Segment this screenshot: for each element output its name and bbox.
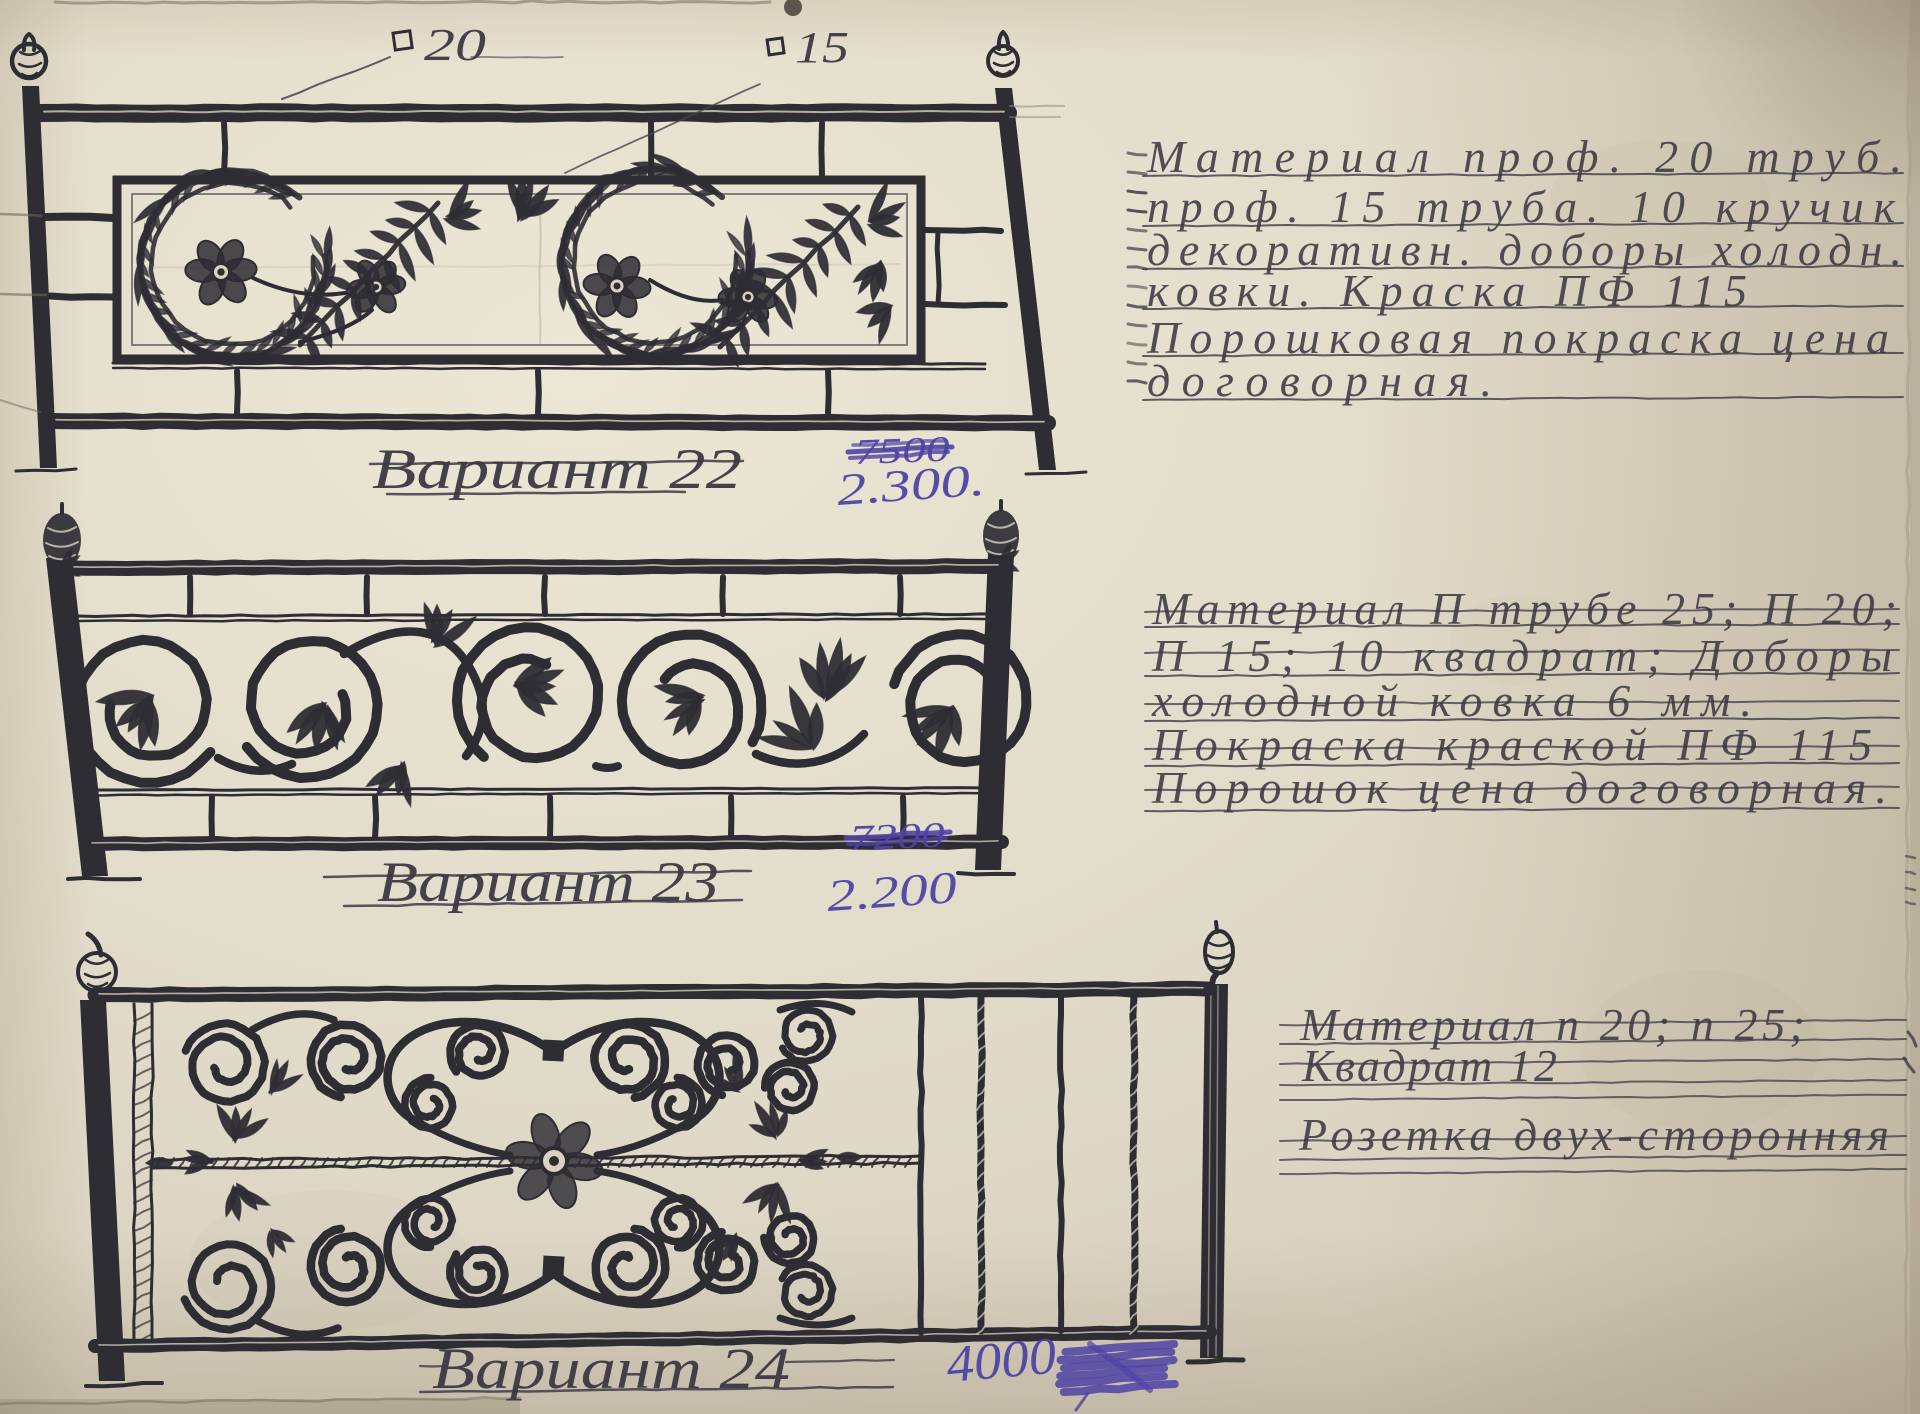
svg-text:2.300.: 2.300. [835, 455, 986, 515]
svg-text:П 15; 10 квадрат; Доборы: П 15; 10 квадрат; Доборы [1151, 630, 1892, 681]
svg-text:Вариант 23: Вариант 23 [377, 851, 719, 914]
svg-text:Розетка двух-сторонняя: Розетка двух-сторонняя [1298, 1109, 1889, 1160]
svg-text:Вариант 22: Вариант 22 [372, 438, 742, 501]
svg-text:Квадрат 12: Квадрат 12 [1301, 1040, 1557, 1091]
svg-text:2.200: 2.200 [825, 862, 958, 921]
svg-text:4000: 4000 [944, 1328, 1059, 1394]
svg-text:15: 15 [795, 23, 849, 72]
svg-text:20: 20 [424, 19, 486, 70]
svg-text:Вариант 24: Вариант 24 [432, 1336, 790, 1401]
